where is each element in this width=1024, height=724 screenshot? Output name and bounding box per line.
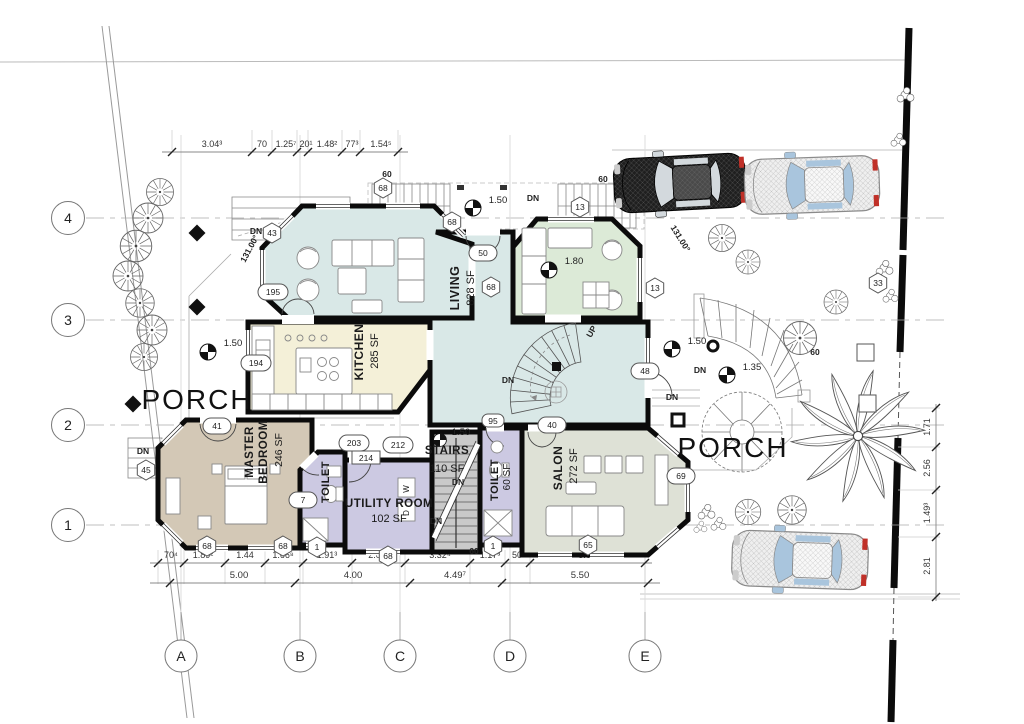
tag-hex-43-label: 43 [267,228,277,238]
car-light-bottom [731,524,869,597]
tag-69: 69 [667,468,695,484]
tag-48: 48 [631,363,659,379]
tag-hex-13-label: 13 [575,202,585,212]
dim-b2-3: 4.49⁷ [444,570,466,581]
label-dn-curved-stair: DN [502,375,514,385]
label-60-porch-right: 60 [810,347,820,357]
tag-7-label: 7 [301,495,306,505]
tag-hex-68-label: 68 [378,183,388,193]
room-label-living: LIVING [448,266,462,311]
room-label-stairs: STAIRS [425,445,469,457]
dim-b2-4: 5.50 [571,570,590,581]
spot-150-toilet2: 1.50 [452,427,471,438]
room-label-toilet1: TOILET [320,461,332,503]
tag-203: 203 [339,435,369,451]
grid-row-3: 3 [64,312,72,328]
tag-214: 214 [352,451,380,464]
grid-row-4: 4 [64,210,72,226]
spot-180-green-room: 1.80 [565,256,584,267]
dim-top-3: 1.25⁷ [276,139,297,149]
tag-194: 194 [241,355,271,371]
label-washer: W [402,485,411,493]
dim-top-4: 20¹ [299,139,312,149]
tag-hex-45-label: 45 [141,465,151,475]
tag-50-label: 50 [478,248,488,258]
tag-hex-1-label: 1 [315,542,320,552]
room-area-master: 246 SF [273,433,285,467]
grid-col-c: C [395,648,405,664]
tag-hex-68-b2: 68 [274,536,291,556]
tag-hex-68-label: 68 [486,282,496,292]
dim-top-2: 70 [257,139,267,149]
room-label-kitchen: KITCHEN [352,324,366,381]
tag-50: 50 [469,245,497,261]
label-dn-stairs-room-1: DN [452,477,464,487]
dim-top-1: 3.04³ [202,139,223,149]
tag-hex-68-b1: 68 [198,536,215,556]
dim-top-7: 1.54⁵ [370,139,392,149]
grid-col-e: E [640,648,649,664]
floor-plan-canvas: 4 3 2 1 A B C D E 3.04³ 70 1.25⁷ 20¹ 1.4… [0,0,1024,724]
porch-label-left: PORCH [141,384,252,415]
label-60-stairs-bottom: 60 [469,546,479,556]
tag-hex-13-label: 13 [650,283,660,293]
tag-hex-1-b1: 1 [308,537,325,557]
tag-hex-68-hall: 68 [482,277,499,297]
room-label-toilet2: TOILET [489,459,501,501]
tag-hex-13-green-east: 13 [646,278,663,298]
label-dn-porch-right-1: DN [694,365,706,375]
spot-135-stairs: 1.35 [743,362,762,373]
grid-col-d: D [505,648,515,664]
dim-right-3: 1.49³ [922,503,932,524]
tag-hex-65: 65 [579,535,596,555]
tag-95-label: 95 [488,416,498,426]
tag-203-label: 203 [347,438,361,448]
grid-row-2: 2 [64,417,72,433]
tag-7: 7 [289,492,317,508]
dim-right-4: 2.81 [922,557,932,575]
dim-b2-1: 5.00 [230,570,249,581]
tag-212: 212 [383,437,413,453]
room-area-living: 828 SF [465,270,477,306]
tag-40-label: 40 [547,420,557,430]
tag-hex-43: 43 [263,223,280,243]
car-light-top [744,149,881,221]
car-dark [612,147,747,220]
label-60-terrace-l: 60 [382,169,392,179]
tag-hex-13-green: 13 [571,197,588,217]
tag-hex-68-b3: 68 [379,546,396,566]
tag-hex-68-label: 68 [202,541,212,551]
tag-hex-65-label: 65 [583,540,593,550]
grid-col-a: A [176,648,186,664]
right-porch-curved-stairs [694,294,810,402]
room-label-master-1: MASTER [244,426,256,478]
tag-hex-68-label: 68 [383,551,393,561]
tag-hex-68-label: 68 [447,217,457,227]
grid-col-b: B [295,648,304,664]
floor-plan-svg: 4 3 2 1 A B C D E 3.04³ 70 1.25⁷ 20¹ 1.4… [0,0,1024,724]
dim-b2-2: 4.00 [344,570,363,581]
spot-150-terrace: 1.50 [489,195,508,206]
property-fence [891,28,909,722]
tag-hex-68-terrace-l: 68 [374,178,391,198]
tag-hex-68-label: 68 [278,541,288,551]
grid-bubbles-rows: 4 3 2 1 [52,202,85,542]
porch-label-right: PORCH [677,432,788,463]
tag-212-label: 212 [391,440,405,450]
grid-bubbles-cols: A B C D E [165,640,661,672]
tag-hex-33: 33 [869,273,886,293]
tag-hex-1-b2: 1 [484,536,501,556]
room-label-master-2: BEDROOM [258,420,270,484]
tag-48-label: 48 [640,366,650,376]
tag-95: 95 [482,414,504,427]
label-dn-porch-right-2: DN [666,392,678,402]
label-angle-nw: 131.00° [238,233,261,264]
label-angle-ne: 131.00° [669,223,693,254]
tag-195: 195 [258,284,288,300]
room-area-utility: 102 SF [371,513,407,525]
room-area-toilet2: 60 SF [502,464,513,491]
tag-69-label: 69 [676,471,686,481]
dim-right-1: 1.71 [922,418,932,436]
tag-41: 41 [203,418,231,434]
label-dn-terrace: DN [527,193,539,203]
label-60-terrace-r: 60 [598,174,608,184]
tag-214-label: 214 [359,453,373,463]
room-label-salon: SALON [551,446,565,491]
room-label-utility: UTILITY ROOM [345,498,433,510]
room-area-stairs: 110 SF [430,463,465,475]
tag-40: 40 [538,417,566,433]
tag-hex-33-label: 33 [873,278,883,288]
tag-hex-68-wing: 68 [443,212,460,232]
grid-row-1: 1 [64,517,72,533]
planters [857,344,876,412]
dim-right-2: 2.56 [922,459,932,477]
spot-150-porch-right: 1.50 [688,336,707,347]
label-dn-west-steps: DN [137,446,149,456]
tag-194-label: 194 [249,358,263,368]
tag-195-label: 195 [266,287,280,297]
tag-hex-45: 45 [137,460,154,480]
dim-b1-1: 70⁴ [164,550,178,560]
dimension-chain-top: 3.04³ 70 1.25⁷ 20¹ 1.48² 77³ 1.54⁵ [162,130,408,156]
dim-top-5: 1.48² [317,139,338,149]
spot-150-porch-left: 1.50 [224,338,243,349]
label-dn-stairs-room-2: DN [430,516,442,526]
room-area-kitchen: 285 SF [369,333,381,369]
tag-hex-1-label: 1 [491,541,496,551]
palm-tree [791,370,924,503]
room-area-salon: 272 SF [568,448,580,484]
dim-top-6: 77³ [345,139,358,149]
tag-41-label: 41 [212,421,222,431]
